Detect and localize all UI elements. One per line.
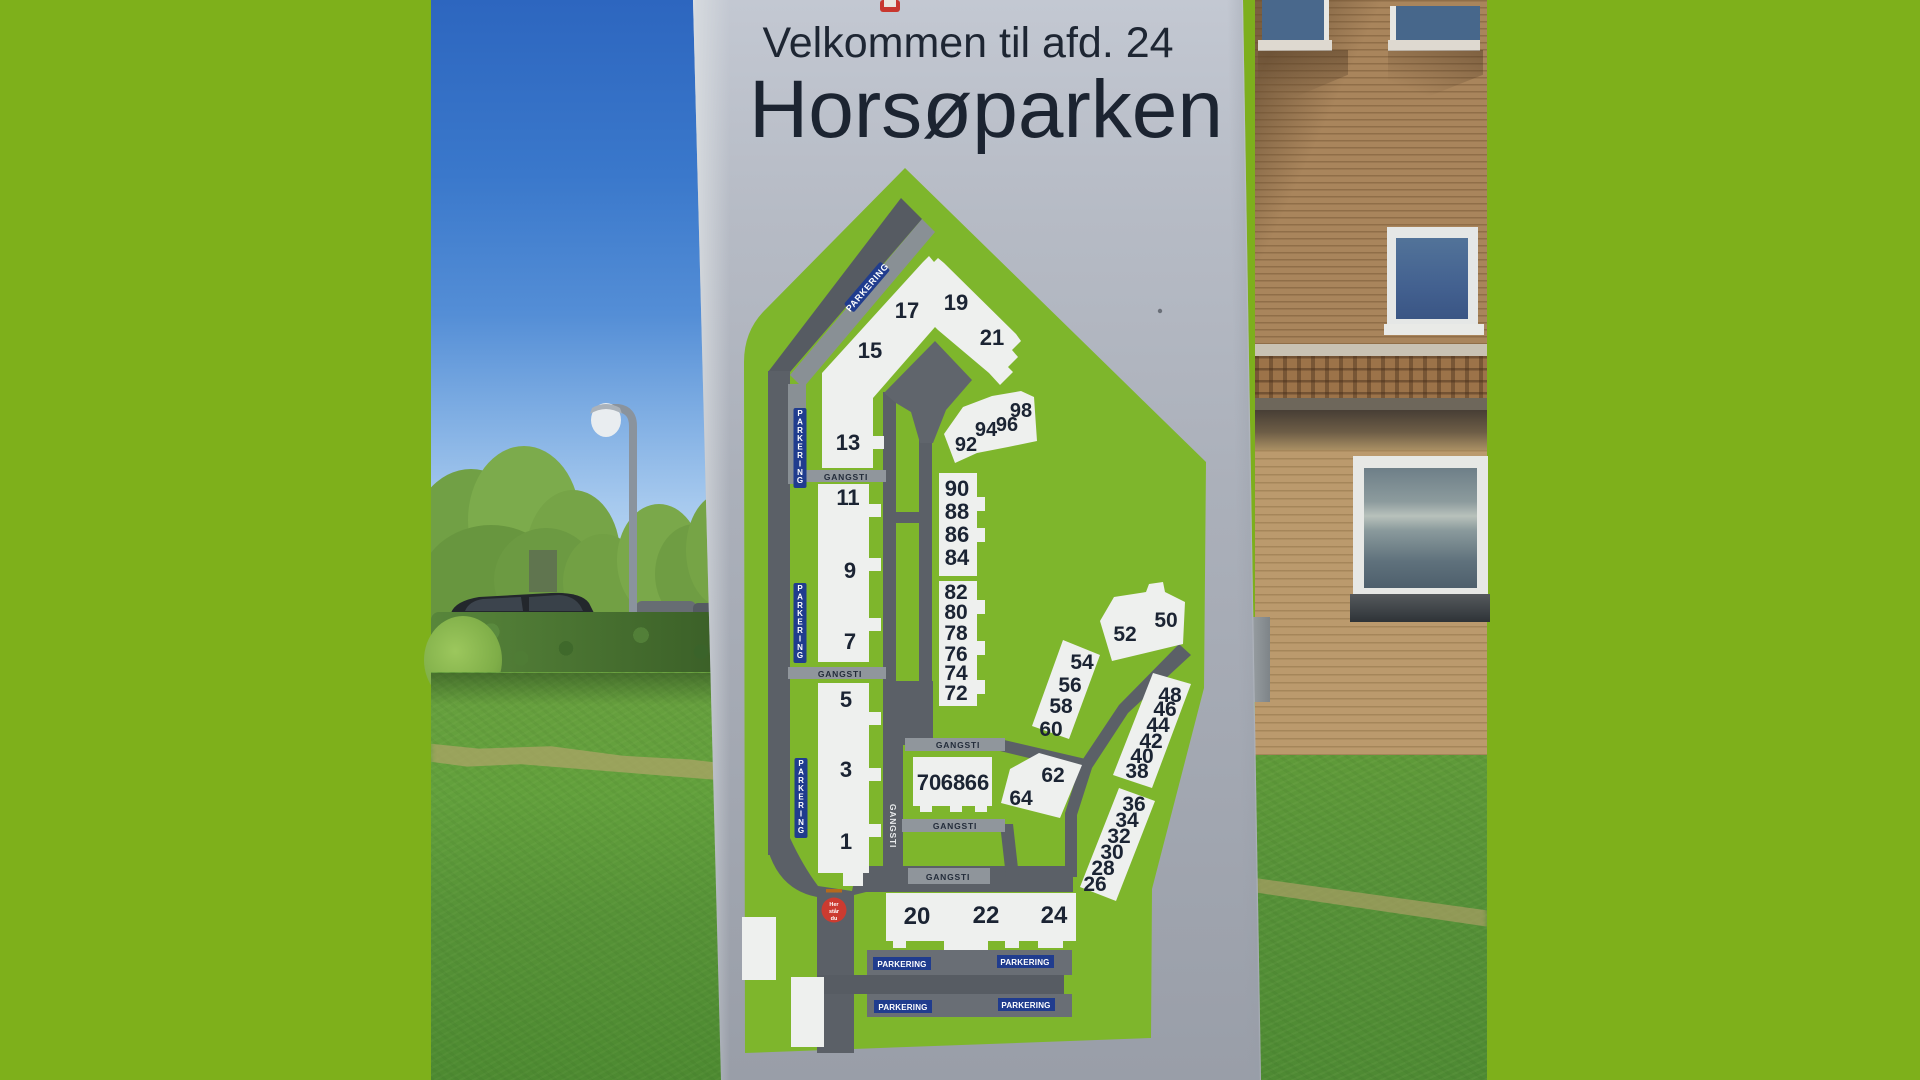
svg-text:GANGSTI: GANGSTI xyxy=(888,804,898,848)
svg-text:13: 13 xyxy=(836,430,860,455)
svg-text:22: 22 xyxy=(973,902,1000,929)
svg-text:56: 56 xyxy=(1058,674,1081,697)
svg-text:38: 38 xyxy=(1125,760,1149,783)
svg-text:1: 1 xyxy=(840,829,852,854)
svg-text:PARKERING: PARKERING xyxy=(878,1003,927,1012)
svg-text:78: 78 xyxy=(944,622,968,645)
svg-text:52: 52 xyxy=(1113,623,1136,646)
svg-text:7: 7 xyxy=(844,629,856,654)
svg-text:3: 3 xyxy=(840,757,852,782)
svg-text:11: 11 xyxy=(836,485,859,510)
svg-text:72: 72 xyxy=(944,682,967,705)
svg-text:90: 90 xyxy=(945,476,969,501)
svg-text:68: 68 xyxy=(941,770,965,795)
svg-text:64: 64 xyxy=(1009,787,1033,810)
svg-text:58: 58 xyxy=(1049,695,1073,718)
svg-text:PARKERING: PARKERING xyxy=(1001,1001,1050,1010)
svg-text:GANGSTI: GANGSTI xyxy=(933,821,977,831)
svg-text:GANGSTI: GANGSTI xyxy=(824,472,868,482)
svg-text:26: 26 xyxy=(1083,873,1106,896)
svg-text:70: 70 xyxy=(917,770,941,795)
svg-text:PARKERING: PARKERING xyxy=(798,759,804,835)
svg-text:98: 98 xyxy=(1010,400,1032,422)
svg-text:24: 24 xyxy=(1041,902,1068,929)
svg-text:17: 17 xyxy=(895,298,919,323)
svg-text:Her: Her xyxy=(829,902,839,908)
svg-text:19: 19 xyxy=(944,290,968,315)
svg-text:84: 84 xyxy=(945,545,970,570)
svg-text:86: 86 xyxy=(945,522,969,547)
svg-text:PARKERING: PARKERING xyxy=(797,584,803,660)
svg-text:60: 60 xyxy=(1039,718,1062,741)
svg-text:GANGSTI: GANGSTI xyxy=(818,669,862,679)
svg-text:92: 92 xyxy=(955,434,977,456)
svg-text:GANGSTI: GANGSTI xyxy=(936,740,980,750)
svg-text:66: 66 xyxy=(965,770,989,795)
svg-text:20: 20 xyxy=(904,903,931,930)
svg-text:PARKERING: PARKERING xyxy=(797,409,803,485)
svg-text:GANGSTI: GANGSTI xyxy=(926,872,970,882)
svg-text:står: står xyxy=(829,908,840,915)
svg-text:88: 88 xyxy=(945,499,969,524)
svg-text:21: 21 xyxy=(980,325,1004,350)
svg-text:5: 5 xyxy=(840,687,852,712)
svg-text:62: 62 xyxy=(1041,764,1064,787)
svg-text:80: 80 xyxy=(944,601,967,624)
svg-text:PARKERING: PARKERING xyxy=(877,960,926,969)
svg-text:50: 50 xyxy=(1154,609,1177,632)
svg-text:du: du xyxy=(831,916,838,922)
svg-text:9: 9 xyxy=(844,558,856,583)
svg-text:PARKERING: PARKERING xyxy=(1000,958,1049,967)
svg-text:94: 94 xyxy=(975,419,998,441)
svg-text:54: 54 xyxy=(1070,651,1094,674)
svg-text:15: 15 xyxy=(858,338,882,363)
